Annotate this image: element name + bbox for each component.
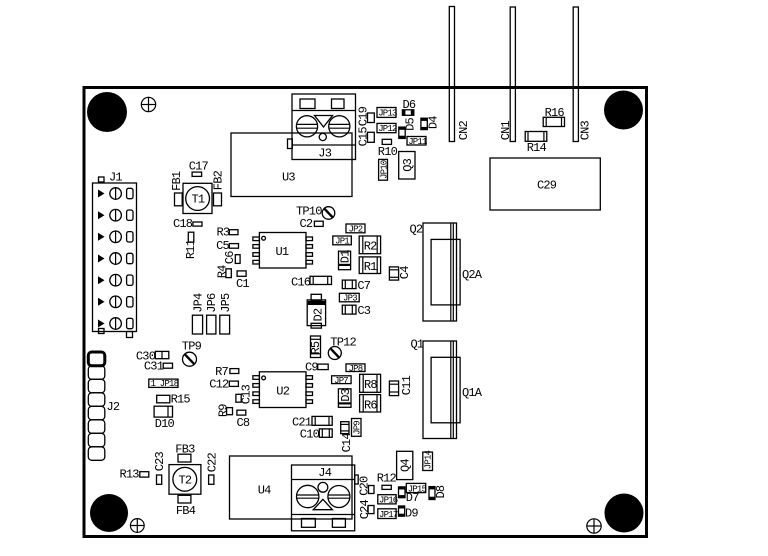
svg-text:D1: D1	[339, 250, 353, 263]
svg-text:R1: R1	[364, 260, 377, 274]
svg-text:JP7: JP7	[334, 376, 348, 386]
svg-text:TP9: TP9	[182, 340, 202, 354]
svg-text:T1: T1	[192, 193, 205, 207]
svg-text:R12: R12	[377, 472, 397, 486]
svg-text:R15: R15	[171, 393, 191, 407]
svg-text:1 JP18: 1 JP18	[151, 379, 179, 389]
svg-text:D4: D4	[426, 116, 440, 129]
svg-text:R2: R2	[364, 239, 377, 253]
svg-text:JP12: JP12	[378, 124, 397, 134]
svg-text:C23: C23	[153, 451, 167, 471]
svg-text:C7: C7	[357, 279, 370, 293]
svg-text:R5: R5	[309, 341, 323, 354]
svg-text:R13: R13	[120, 468, 140, 482]
svg-text:JP11: JP11	[408, 137, 427, 147]
svg-text:U2: U2	[276, 384, 289, 398]
svg-text:JP5: JP5	[219, 293, 233, 313]
svg-text:JP16: JP16	[379, 496, 398, 506]
svg-text:C12: C12	[209, 378, 229, 392]
svg-text:C19: C19	[356, 106, 370, 126]
svg-text:U4: U4	[258, 484, 271, 498]
svg-text:J3: J3	[318, 147, 331, 161]
svg-text:U3: U3	[282, 171, 295, 185]
svg-text:C13: C13	[240, 384, 254, 404]
svg-text:D8: D8	[434, 485, 448, 498]
svg-text:C2: C2	[300, 217, 313, 231]
svg-text:D9: D9	[405, 507, 418, 521]
svg-text:Q1: Q1	[411, 338, 424, 352]
svg-text:D10: D10	[155, 417, 175, 431]
svg-text:Q2: Q2	[410, 222, 423, 236]
svg-text:C6: C6	[223, 251, 237, 264]
svg-text:CN1: CN1	[499, 120, 513, 140]
svg-text:Q4: Q4	[399, 459, 413, 472]
svg-text:JP17: JP17	[379, 510, 398, 520]
svg-text:R16: R16	[545, 106, 565, 120]
svg-text:C15: C15	[356, 127, 370, 147]
svg-text:R8: R8	[364, 378, 377, 392]
svg-text:JP8: JP8	[349, 364, 363, 374]
svg-text:FB3: FB3	[175, 442, 195, 456]
svg-text:C18: C18	[173, 217, 193, 231]
svg-text:CN2: CN2	[457, 120, 471, 140]
svg-text:C20: C20	[358, 476, 372, 496]
svg-text:CN3: CN3	[579, 120, 593, 140]
svg-text:C31: C31	[144, 360, 164, 374]
svg-text:R14: R14	[527, 141, 547, 155]
svg-text:C16: C16	[291, 276, 311, 290]
svg-text:C5: C5	[216, 239, 229, 253]
svg-text:JP10: JP10	[379, 160, 389, 179]
svg-text:JP1: JP1	[335, 237, 349, 247]
svg-text:JP2: JP2	[349, 225, 363, 235]
svg-text:JP3: JP3	[343, 294, 357, 304]
svg-text:C3: C3	[357, 304, 370, 318]
svg-text:TP12: TP12	[330, 336, 356, 350]
svg-text:D3: D3	[339, 388, 353, 401]
svg-text:D6: D6	[403, 98, 416, 112]
svg-text:C24: C24	[358, 499, 372, 519]
svg-text:C10: C10	[300, 428, 320, 442]
svg-text:D2: D2	[311, 308, 325, 321]
svg-text:C22: C22	[206, 452, 220, 472]
svg-text:Q1A: Q1A	[462, 386, 483, 400]
svg-text:FB2: FB2	[212, 170, 226, 190]
svg-text:U1: U1	[276, 245, 289, 259]
svg-text:C1: C1	[236, 277, 249, 291]
svg-text:R6: R6	[364, 398, 377, 412]
svg-text:JP14: JP14	[424, 450, 434, 469]
svg-text:Q2A: Q2A	[462, 268, 483, 282]
svg-text:J2: J2	[107, 400, 120, 414]
svg-text:JP13: JP13	[378, 109, 397, 119]
svg-text:C8: C8	[237, 416, 250, 430]
svg-text:T2: T2	[179, 474, 192, 488]
svg-text:FB1: FB1	[170, 171, 184, 191]
svg-text:C11: C11	[400, 375, 414, 395]
svg-text:C29: C29	[537, 179, 557, 193]
svg-text:FB4: FB4	[176, 504, 196, 518]
svg-text:R11: R11	[184, 239, 198, 259]
svg-text:JP6: JP6	[205, 293, 219, 313]
svg-text:R3: R3	[217, 226, 230, 240]
svg-text:Q3: Q3	[401, 158, 415, 171]
svg-text:J4: J4	[318, 466, 331, 480]
svg-text:C4: C4	[398, 266, 412, 279]
svg-text:R9: R9	[216, 404, 230, 417]
svg-text:C9: C9	[305, 361, 318, 375]
svg-text:R10: R10	[378, 145, 398, 159]
svg-text:JP4: JP4	[191, 293, 205, 313]
svg-text:JP9: JP9	[352, 421, 362, 435]
svg-text:D5: D5	[404, 117, 418, 130]
svg-text:J1: J1	[109, 171, 122, 185]
svg-text:R4: R4	[215, 265, 229, 278]
svg-text:C17: C17	[189, 160, 209, 174]
svg-text:D7: D7	[406, 491, 419, 505]
